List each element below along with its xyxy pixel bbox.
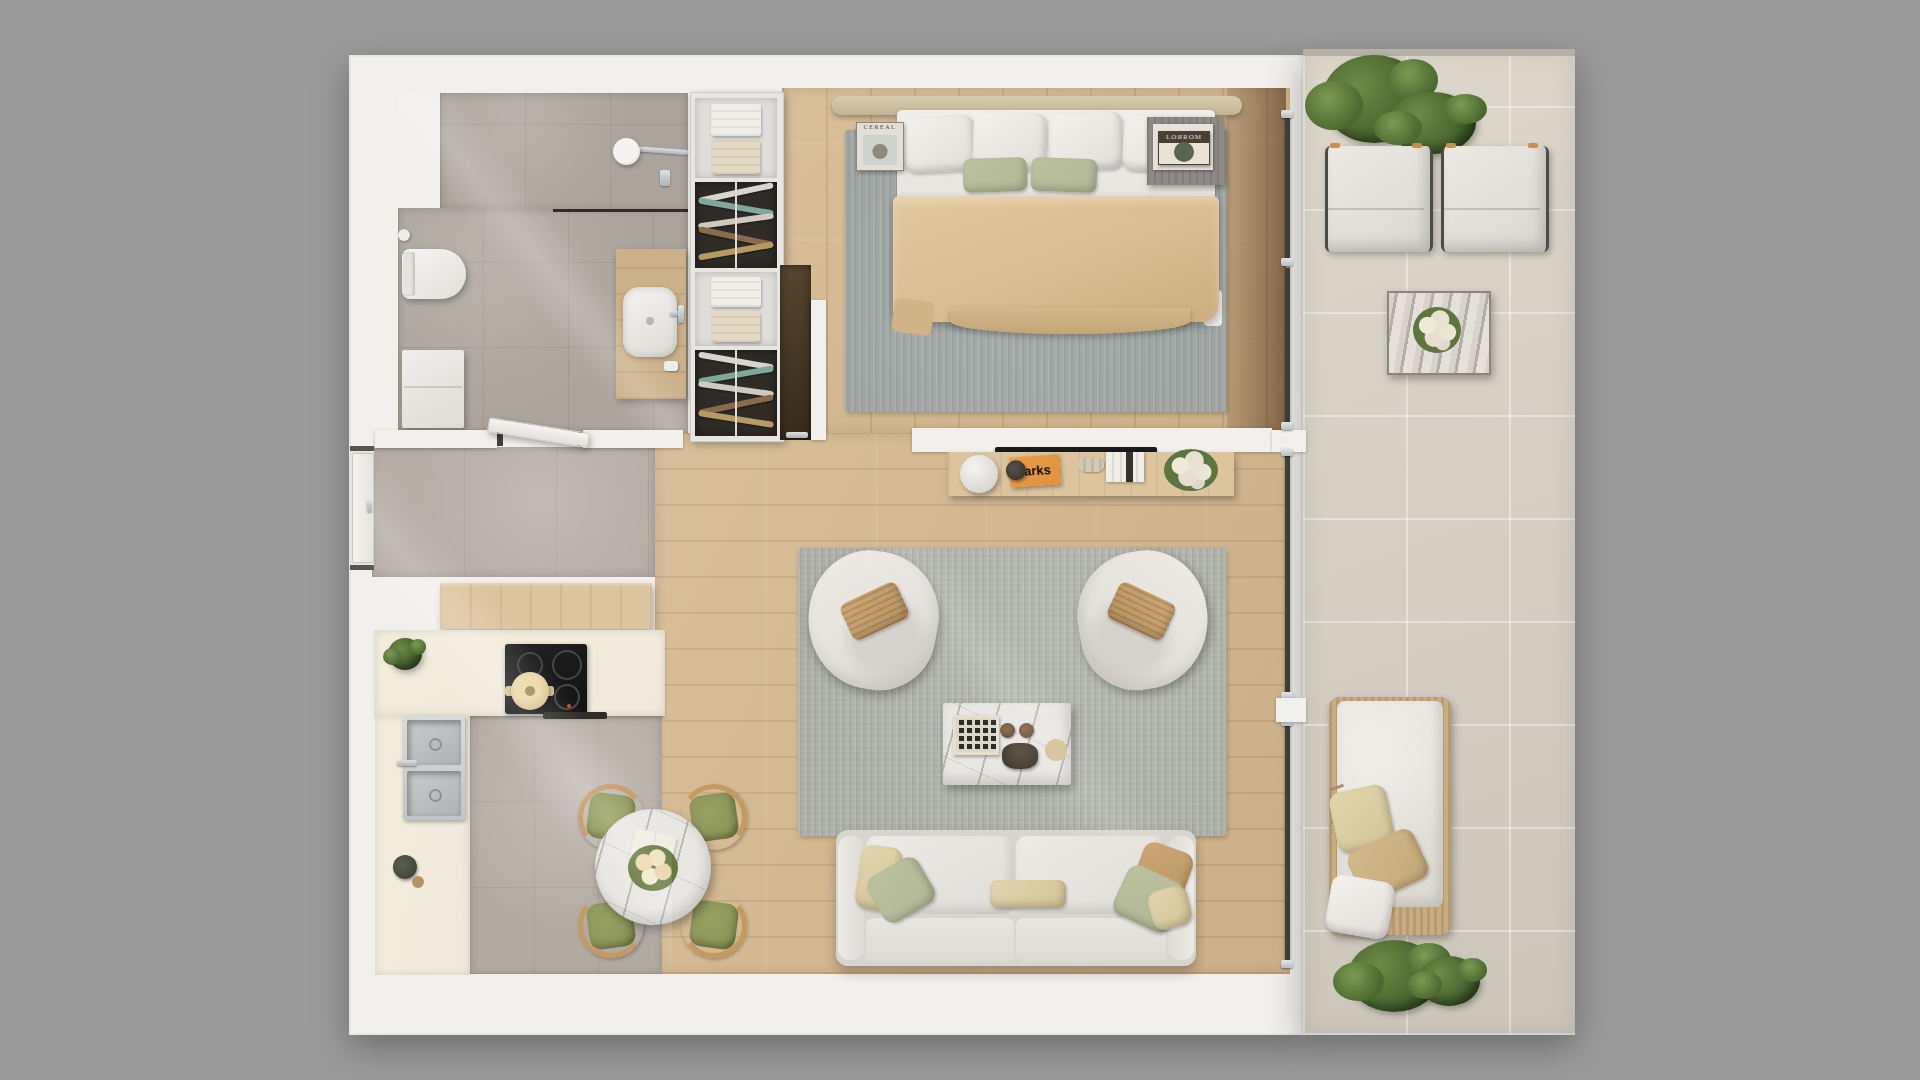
magazine-cereal: CEREAL <box>856 122 904 171</box>
sofa-seat-cushion <box>866 918 1014 962</box>
nightstand: LOЯROM <box>1147 117 1224 185</box>
floor-plan-render: CEREAL LOЯROM arks <box>0 0 1920 1080</box>
dining-centerpiece-bouquet <box>628 845 678 891</box>
shower-mixer <box>660 170 670 186</box>
balcony-chair <box>1441 146 1549 252</box>
door-track-fitting <box>786 432 808 438</box>
kitchen-plant <box>388 638 422 670</box>
parks-book-title: arks <box>1023 462 1051 479</box>
glass-wall-segment <box>1285 268 1290 426</box>
chair-wood-tip <box>1446 143 1456 148</box>
hall-wall-right-segment <box>583 430 683 448</box>
bed-accent-pillow <box>1030 157 1097 193</box>
wardrobe-shelf-section <box>695 272 777 346</box>
emblem-book: LOЯROM <box>1158 131 1210 165</box>
glass-fitting <box>1281 110 1293 118</box>
chair-cushion-seam <box>1444 208 1540 210</box>
sofa <box>836 830 1196 966</box>
soap-dish <box>664 361 678 371</box>
toilet <box>402 249 466 299</box>
cooktop-vent <box>543 712 607 719</box>
rolled-textile <box>1078 458 1104 472</box>
side-table-bouquet <box>1413 307 1461 353</box>
glass-fitting <box>1281 960 1293 968</box>
window-side-floor-shading <box>1227 88 1286 433</box>
daybed-pillow <box>1323 873 1396 941</box>
chair-cushion <box>688 899 740 951</box>
magazine-title: CEREAL <box>857 123 903 131</box>
balcony-plant <box>1388 92 1476 154</box>
glass-fitting <box>1281 448 1293 456</box>
shower-glass-partition <box>553 209 688 212</box>
sink-drain <box>429 789 442 802</box>
chair-wood-tip <box>1528 143 1538 148</box>
basin-drain <box>646 317 654 325</box>
sphere-lamp <box>960 455 998 493</box>
toilet-paper-holder <box>398 229 410 241</box>
pocket-door-panel <box>780 265 811 440</box>
glass-fitting <box>1281 422 1293 430</box>
wardrobe-hanging-section <box>695 350 777 436</box>
small-cup <box>1019 723 1034 738</box>
console-flower-vase <box>1164 449 1218 491</box>
bed-accent-pillow <box>962 157 1027 193</box>
folded-clothes-beige <box>712 311 760 342</box>
checkered-book <box>953 715 999 755</box>
balcony-top-edge <box>1303 49 1575 56</box>
blanket-corner-flap <box>891 297 935 336</box>
grinder <box>393 855 417 879</box>
daybed <box>1329 697 1451 935</box>
balcony-chair <box>1325 146 1433 252</box>
entrance-door <box>350 446 374 570</box>
faucet-body <box>678 305 684 323</box>
parks-book: arks <box>1009 454 1061 487</box>
cooktop-indicator-light <box>567 704 571 708</box>
coffee-table <box>943 703 1071 785</box>
pot-lid-knob <box>525 686 535 696</box>
folded-clothes-beige <box>712 140 760 174</box>
glass-wall-segment <box>1285 724 1290 964</box>
bed-blanket <box>893 196 1219 322</box>
bathroom-cabinet <box>402 350 464 428</box>
book-stack <box>1106 452 1144 482</box>
pocket-door-end-wall <box>811 300 826 440</box>
kitchen-sink <box>403 716 465 820</box>
burner-icon <box>552 650 582 680</box>
balcony-plant <box>1418 956 1480 1006</box>
hall-wall-left-segment <box>375 430 497 448</box>
glass-wall-segment <box>1285 114 1290 262</box>
media-console: arks <box>948 452 1234 496</box>
dark-knob <box>1005 460 1026 481</box>
balcony-side-table <box>1387 291 1487 371</box>
chair-cushion-seam <box>1328 208 1424 210</box>
balcony-wall-stub <box>1276 698 1306 722</box>
chair-wood-tip <box>1412 143 1422 148</box>
wardrobe-hanging-section <box>695 182 777 268</box>
entrance-threshold-top <box>350 446 374 451</box>
armchair-right <box>1067 541 1219 699</box>
glass-fitting <box>1281 258 1293 266</box>
sink-faucet <box>397 760 417 766</box>
wardrobe-divider <box>735 350 737 436</box>
emblem-circle <box>1174 142 1194 162</box>
folded-clothes-white <box>711 104 761 136</box>
hallway-floor <box>372 447 655 577</box>
glass-wall-segment <box>1285 452 1290 696</box>
wardrobe-divider <box>735 182 737 268</box>
toilet-tank <box>403 252 415 296</box>
cooktop <box>505 644 587 714</box>
dried-flower <box>1045 739 1067 761</box>
book-stack-dark-spine <box>1126 452 1133 482</box>
entrance-threshold-bottom <box>350 565 374 570</box>
wardrobe-shelf-section <box>695 98 777 178</box>
magazine-cover-photo <box>863 135 897 165</box>
hall-sideboard <box>440 583 652 629</box>
folded-clothes-white <box>711 277 761 307</box>
cabinet-seam <box>404 386 462 388</box>
entrance-door-handle <box>367 500 372 512</box>
sink-drain <box>429 738 442 751</box>
chair-wood-tip <box>1330 143 1340 148</box>
grinder-small <box>412 876 424 888</box>
blanket-drape-fold <box>950 308 1190 334</box>
vanity <box>616 249 686 399</box>
wardrobe <box>690 92 784 442</box>
sofa-lumbar-pillow <box>990 880 1066 908</box>
dark-bowl <box>1002 743 1038 769</box>
armchair-left <box>797 541 949 699</box>
small-cup <box>1000 723 1015 738</box>
shower-head <box>613 138 640 165</box>
